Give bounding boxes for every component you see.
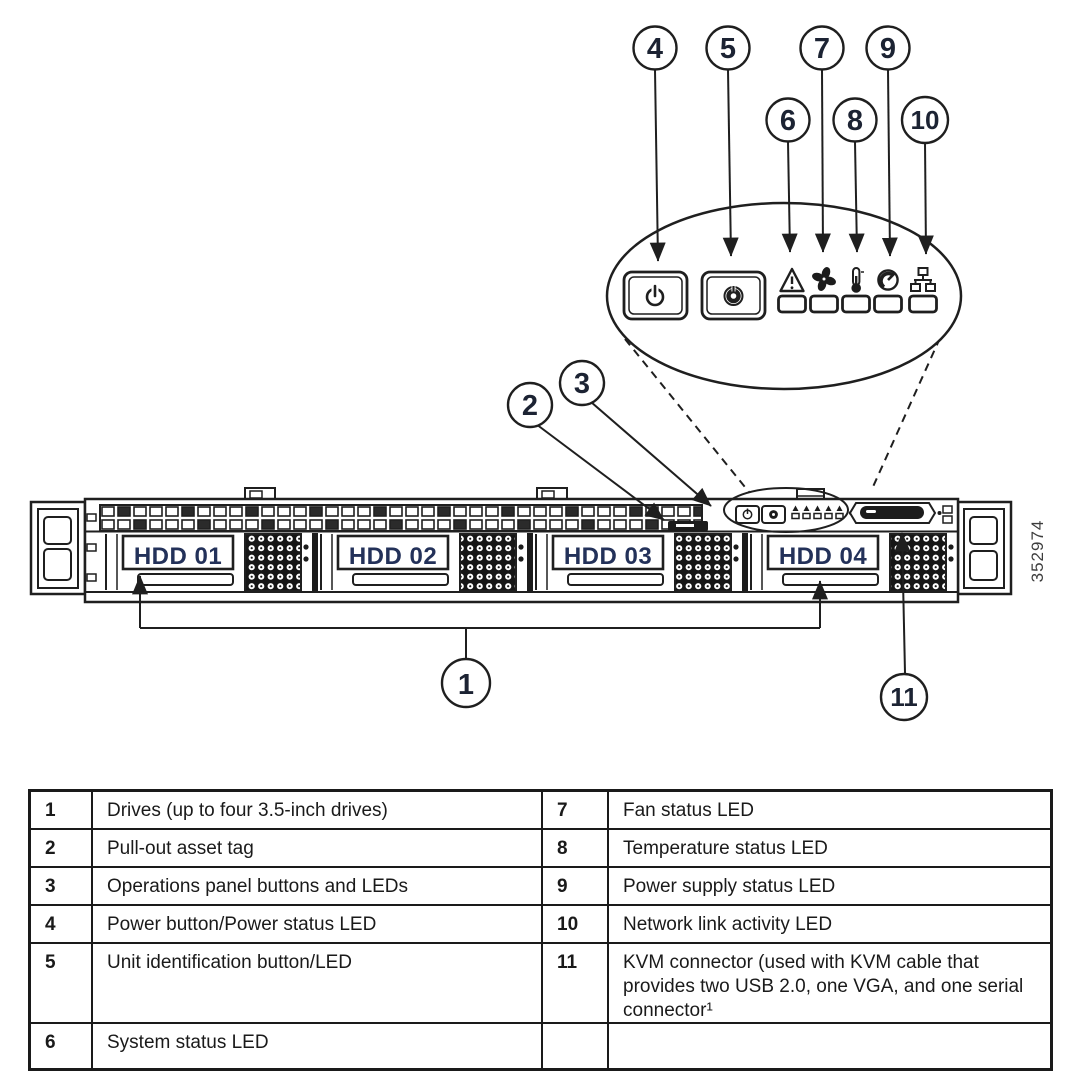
rack-ear-left bbox=[31, 502, 85, 594]
drive-led bbox=[733, 544, 738, 549]
callout-2: 2 bbox=[508, 383, 552, 427]
callout-10: 10 bbox=[902, 97, 948, 143]
legend-desc: Pull-out asset tag bbox=[93, 830, 543, 868]
legend-num: 5 bbox=[31, 944, 93, 1024]
callout-9: 9 bbox=[867, 27, 910, 70]
legend-num: 7 bbox=[543, 792, 609, 830]
drive-grille bbox=[460, 534, 516, 591]
callout-1: 1 bbox=[442, 659, 490, 707]
legend-desc: Drives (up to four 3.5-inch drives) bbox=[93, 792, 543, 830]
system-status-led bbox=[779, 296, 806, 312]
legend-desc: Operations panel buttons and LEDs bbox=[93, 868, 543, 906]
drive-led bbox=[303, 556, 308, 561]
callout-6: 6 bbox=[767, 99, 810, 142]
legend-desc: System status LED bbox=[93, 1024, 543, 1068]
figure-number: 352974 bbox=[1028, 520, 1047, 583]
callout-7: 7 bbox=[801, 27, 844, 70]
drive-led bbox=[303, 544, 308, 549]
drive-label: HDD 03 bbox=[564, 543, 652, 570]
drive-handle bbox=[568, 574, 663, 585]
callout-5: 5 bbox=[707, 27, 750, 70]
power-button bbox=[624, 272, 687, 319]
drive-label: HDD 02 bbox=[349, 543, 437, 570]
drive-grille bbox=[245, 534, 301, 591]
svg-text:3: 3 bbox=[574, 368, 590, 400]
legend-desc: Power supply status LED bbox=[609, 868, 1050, 906]
legend-num: 1 bbox=[31, 792, 93, 830]
drive-led bbox=[948, 544, 953, 549]
drive-led bbox=[948, 556, 953, 561]
server-front-view-figure: HDD 01 HDD 02 HDD 03 bbox=[0, 0, 1080, 1080]
server-chassis: HDD 01 HDD 02 HDD 03 bbox=[31, 488, 1011, 602]
svg-text:2: 2 bbox=[522, 390, 538, 422]
legend-num: 6 bbox=[31, 1024, 93, 1068]
legend-table: 1 Drives (up to four 3.5-inch drives) 7 … bbox=[28, 789, 1053, 1071]
led-window-row bbox=[779, 296, 937, 312]
drive-led bbox=[518, 556, 523, 561]
svg-text:1: 1 bbox=[458, 669, 474, 701]
legend-num: 9 bbox=[543, 868, 609, 906]
svg-text:11: 11 bbox=[890, 682, 918, 712]
drive-handle bbox=[353, 574, 448, 585]
drive-grille bbox=[890, 534, 946, 591]
drive-label: HDD 04 bbox=[779, 543, 868, 570]
legend-desc: Unit identification button/LED bbox=[93, 944, 543, 1024]
fan-status-led bbox=[811, 296, 838, 312]
svg-text:4: 4 bbox=[647, 33, 663, 65]
svg-text:10: 10 bbox=[911, 105, 940, 135]
front-panel-diagram: HDD 01 HDD 02 HDD 03 bbox=[0, 0, 1080, 778]
svg-text:9: 9 bbox=[880, 33, 896, 65]
drive-handle bbox=[138, 574, 233, 585]
detail-ellipse bbox=[607, 203, 961, 389]
legend-desc: KVM connector (used with KVM cable that … bbox=[609, 944, 1050, 1024]
kvm-connector bbox=[849, 503, 942, 523]
drive-led bbox=[518, 544, 523, 549]
callout-8: 8 bbox=[834, 99, 877, 142]
rack-ear-right bbox=[958, 502, 1011, 594]
legend-num: 3 bbox=[31, 868, 93, 906]
legend-desc: Fan status LED bbox=[609, 792, 1050, 830]
svg-text:5: 5 bbox=[720, 33, 736, 65]
power-supply-icon bbox=[878, 270, 897, 289]
legend-desc bbox=[609, 1024, 1050, 1068]
legend-num: 8 bbox=[543, 830, 609, 868]
legend-desc: Power button/Power status LED bbox=[93, 906, 543, 944]
legend-num bbox=[543, 1024, 609, 1068]
callout-4: 4 bbox=[634, 27, 677, 70]
legend-num: 10 bbox=[543, 906, 609, 944]
legend-num: 2 bbox=[31, 830, 93, 868]
drive-handle bbox=[783, 574, 878, 585]
pull-out-asset-tag bbox=[668, 521, 708, 531]
legend-desc: Temperature status LED bbox=[609, 830, 1050, 868]
callout-11: 11 bbox=[881, 674, 927, 720]
legend-num: 4 bbox=[31, 906, 93, 944]
drive-led bbox=[733, 556, 738, 561]
power-supply-status-led bbox=[875, 296, 902, 312]
network-link-activity-led bbox=[910, 296, 937, 312]
callout-3: 3 bbox=[560, 361, 604, 405]
svg-text:7: 7 bbox=[814, 33, 830, 65]
unit-id-button bbox=[702, 272, 765, 319]
legend-desc: Network link activity LED bbox=[609, 906, 1050, 944]
legend-num: 11 bbox=[543, 944, 609, 1024]
temperature-status-led bbox=[843, 296, 870, 312]
front-vent-grille bbox=[100, 505, 702, 531]
svg-text:8: 8 bbox=[847, 105, 863, 137]
svg-text:6: 6 bbox=[780, 105, 796, 137]
drive-grille bbox=[675, 534, 731, 591]
drive-label: HDD 01 bbox=[134, 543, 222, 570]
